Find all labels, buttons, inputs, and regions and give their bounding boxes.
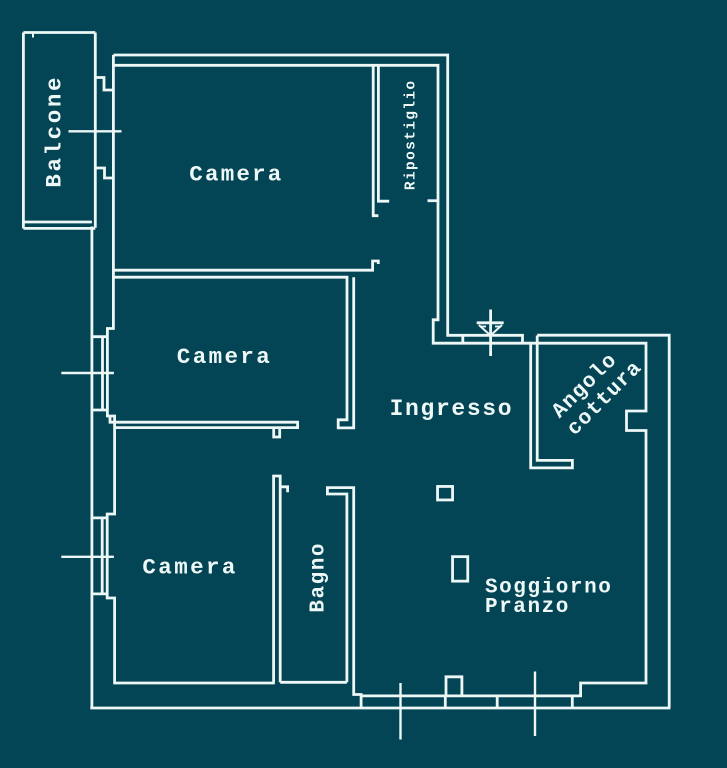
svg-text:Camera: Camera [189, 162, 283, 188]
svg-text:Ripostiglio: Ripostiglio [404, 80, 420, 191]
svg-text:Camera: Camera [177, 344, 272, 370]
svg-text:Camera: Camera [142, 555, 237, 581]
svg-text:Ingresso: Ingresso [390, 396, 514, 422]
svg-text:Balcone: Balcone [42, 75, 68, 188]
svg-text:Pranzo: Pranzo [485, 596, 570, 619]
svg-text:Bagno: Bagno [308, 542, 331, 613]
